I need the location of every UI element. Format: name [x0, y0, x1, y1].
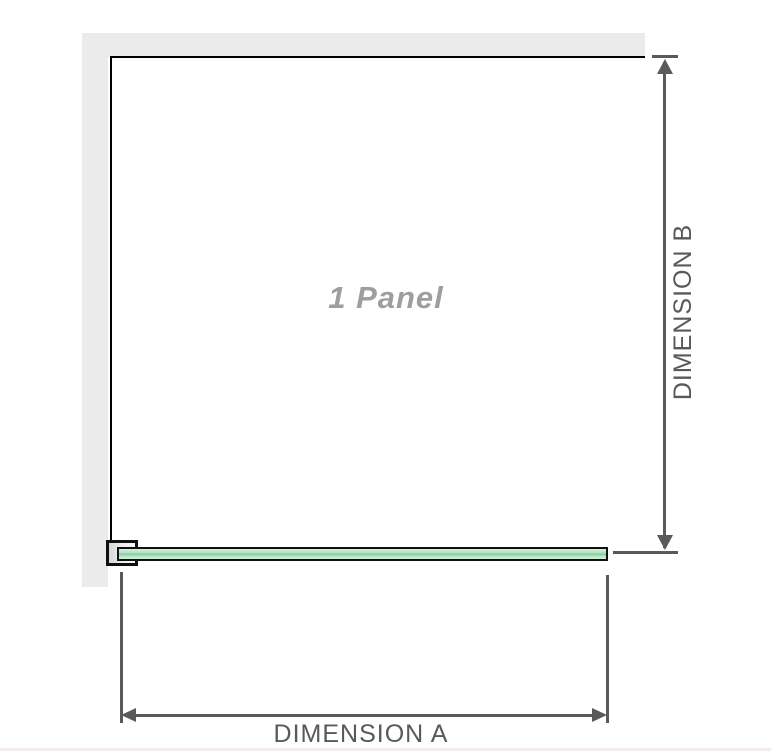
dimension-b-line [663, 62, 666, 548]
wall-top-strip [82, 33, 645, 57]
glass-panel-plan [117, 547, 608, 561]
wall-side-strip [82, 33, 108, 587]
arrow-down-icon [657, 535, 673, 550]
dimension-b-cap-top [652, 55, 678, 58]
dimension-a-extension-left [120, 572, 123, 723]
dimension-a-extension-right [606, 575, 609, 723]
panel-dimension-diagram: 1 Panel DIMENSION B DIMENSION A [0, 0, 771, 755]
dimension-a-label: DIMENSION A [221, 720, 501, 749]
bottom-divider [0, 748, 771, 751]
arrow-up-icon [657, 59, 673, 74]
dimension-b-cap-bottom [613, 551, 678, 554]
dimension-a-line [132, 714, 596, 717]
dimension-b-label: DIMENSION B [669, 212, 695, 412]
panel-label: 1 Panel [246, 280, 526, 316]
arrow-left-icon [121, 708, 136, 722]
arrow-right-icon [592, 708, 607, 722]
